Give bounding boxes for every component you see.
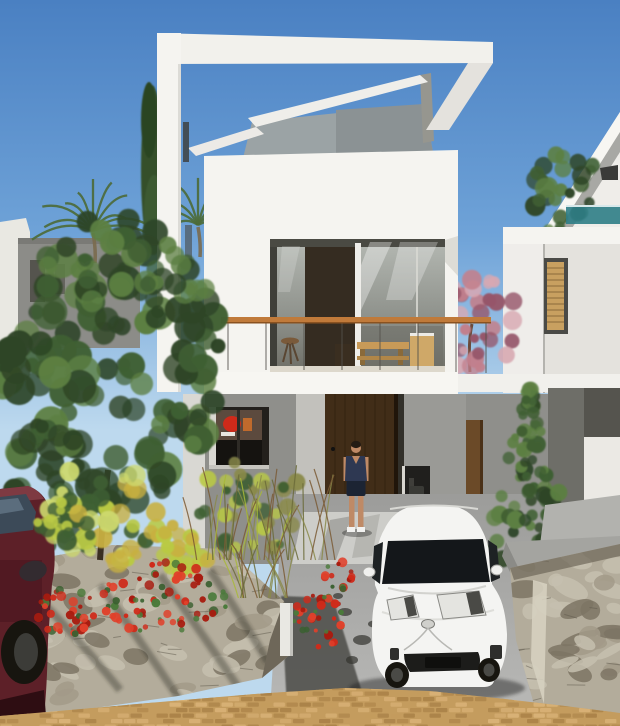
person-shoe-left: [347, 527, 355, 532]
pergola-left-post: [157, 33, 181, 392]
louver-window: [544, 258, 568, 334]
bench-shelf: [357, 356, 409, 360]
rim-right: [484, 664, 495, 677]
wood-cabinet: [410, 334, 434, 368]
plate-recess: [425, 657, 461, 668]
fog-light-left: [390, 648, 399, 660]
bar-stool-seat: [281, 338, 299, 345]
window-left-jamb: [270, 247, 277, 373]
gate-post-shade: [290, 603, 293, 656]
gate-post: [280, 603, 293, 656]
bench-top: [357, 342, 409, 349]
handrail-shadow: [221, 322, 491, 324]
rendering-image: [0, 0, 620, 726]
maroon-rim: [14, 633, 38, 671]
right-dark-band: [584, 388, 620, 437]
kitchen-orange-item: [243, 418, 252, 431]
windshield: [382, 539, 490, 584]
left-facade-slit-1: [183, 122, 189, 162]
cabinet-top: [410, 333, 434, 336]
person-leg-left: [349, 494, 355, 527]
slab-band: [204, 372, 458, 394]
balustrade-rail: [566, 205, 620, 207]
fog-light-right: [490, 645, 502, 659]
person-shoe-right: [357, 527, 365, 532]
person-hair: [351, 441, 361, 448]
glass-balustrade: [566, 206, 620, 224]
rim-left: [391, 668, 403, 682]
mirror-right: [491, 565, 503, 575]
upper-floor: [204, 150, 491, 374]
stair-bulkhead-shade: [336, 104, 433, 156]
neighbor-white-band: [503, 227, 620, 244]
door-handle: [331, 447, 335, 451]
toyota-emblem: [422, 620, 435, 629]
door-edge: [394, 394, 398, 510]
person-leg-right: [358, 494, 364, 527]
mirror-left: [363, 567, 375, 577]
kitchen-shelf: [221, 432, 235, 436]
